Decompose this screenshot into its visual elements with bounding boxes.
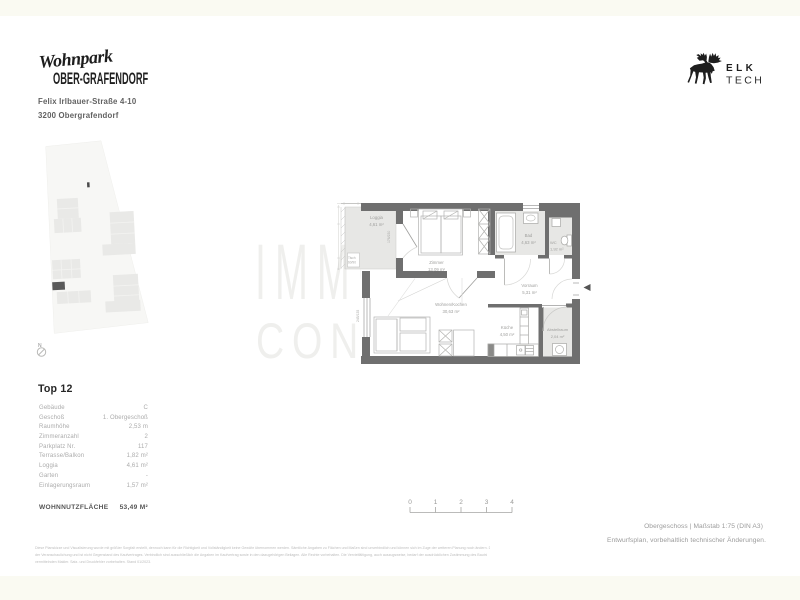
svg-text:WC: WC xyxy=(550,240,557,245)
svg-text:Vorraum: Vorraum xyxy=(521,283,538,288)
svg-text:176/230: 176/230 xyxy=(387,231,391,243)
svg-text:1: 1 xyxy=(434,499,438,506)
svg-text:Tisch: Tisch xyxy=(348,256,356,260)
svg-text:60/90: 60/90 xyxy=(348,261,356,265)
svg-text:3: 3 xyxy=(485,499,489,506)
svg-text:5,31 m²: 5,31 m² xyxy=(522,290,537,295)
svg-text:4,61 m²: 4,61 m² xyxy=(369,222,384,227)
svg-text:Wohnen/Kochen: Wohnen/Kochen xyxy=(435,302,467,307)
svg-text:N: N xyxy=(38,343,42,349)
svg-text:1,92 m²: 1,92 m² xyxy=(550,247,564,252)
svg-text:2: 2 xyxy=(459,499,463,506)
svg-text:2,04 m²: 2,04 m² xyxy=(551,334,565,339)
svg-text:Bad: Bad xyxy=(525,233,533,238)
svg-text:Loggia: Loggia xyxy=(370,215,384,220)
svg-text:4,50 m²: 4,50 m² xyxy=(500,332,515,337)
svg-text:Zimmer: Zimmer xyxy=(429,260,444,265)
svg-text:30,63 m²: 30,63 m² xyxy=(443,309,461,314)
svg-text:13,09 m²: 13,09 m² xyxy=(428,267,446,272)
svg-text:0: 0 xyxy=(408,499,412,506)
svg-text:245/135: 245/135 xyxy=(356,310,360,322)
svg-text:Abstellraum: Abstellraum xyxy=(547,327,569,332)
svg-text:Küche: Küche xyxy=(501,325,514,330)
svg-text:4: 4 xyxy=(510,499,514,506)
svg-text:4,63 m²: 4,63 m² xyxy=(521,240,536,245)
